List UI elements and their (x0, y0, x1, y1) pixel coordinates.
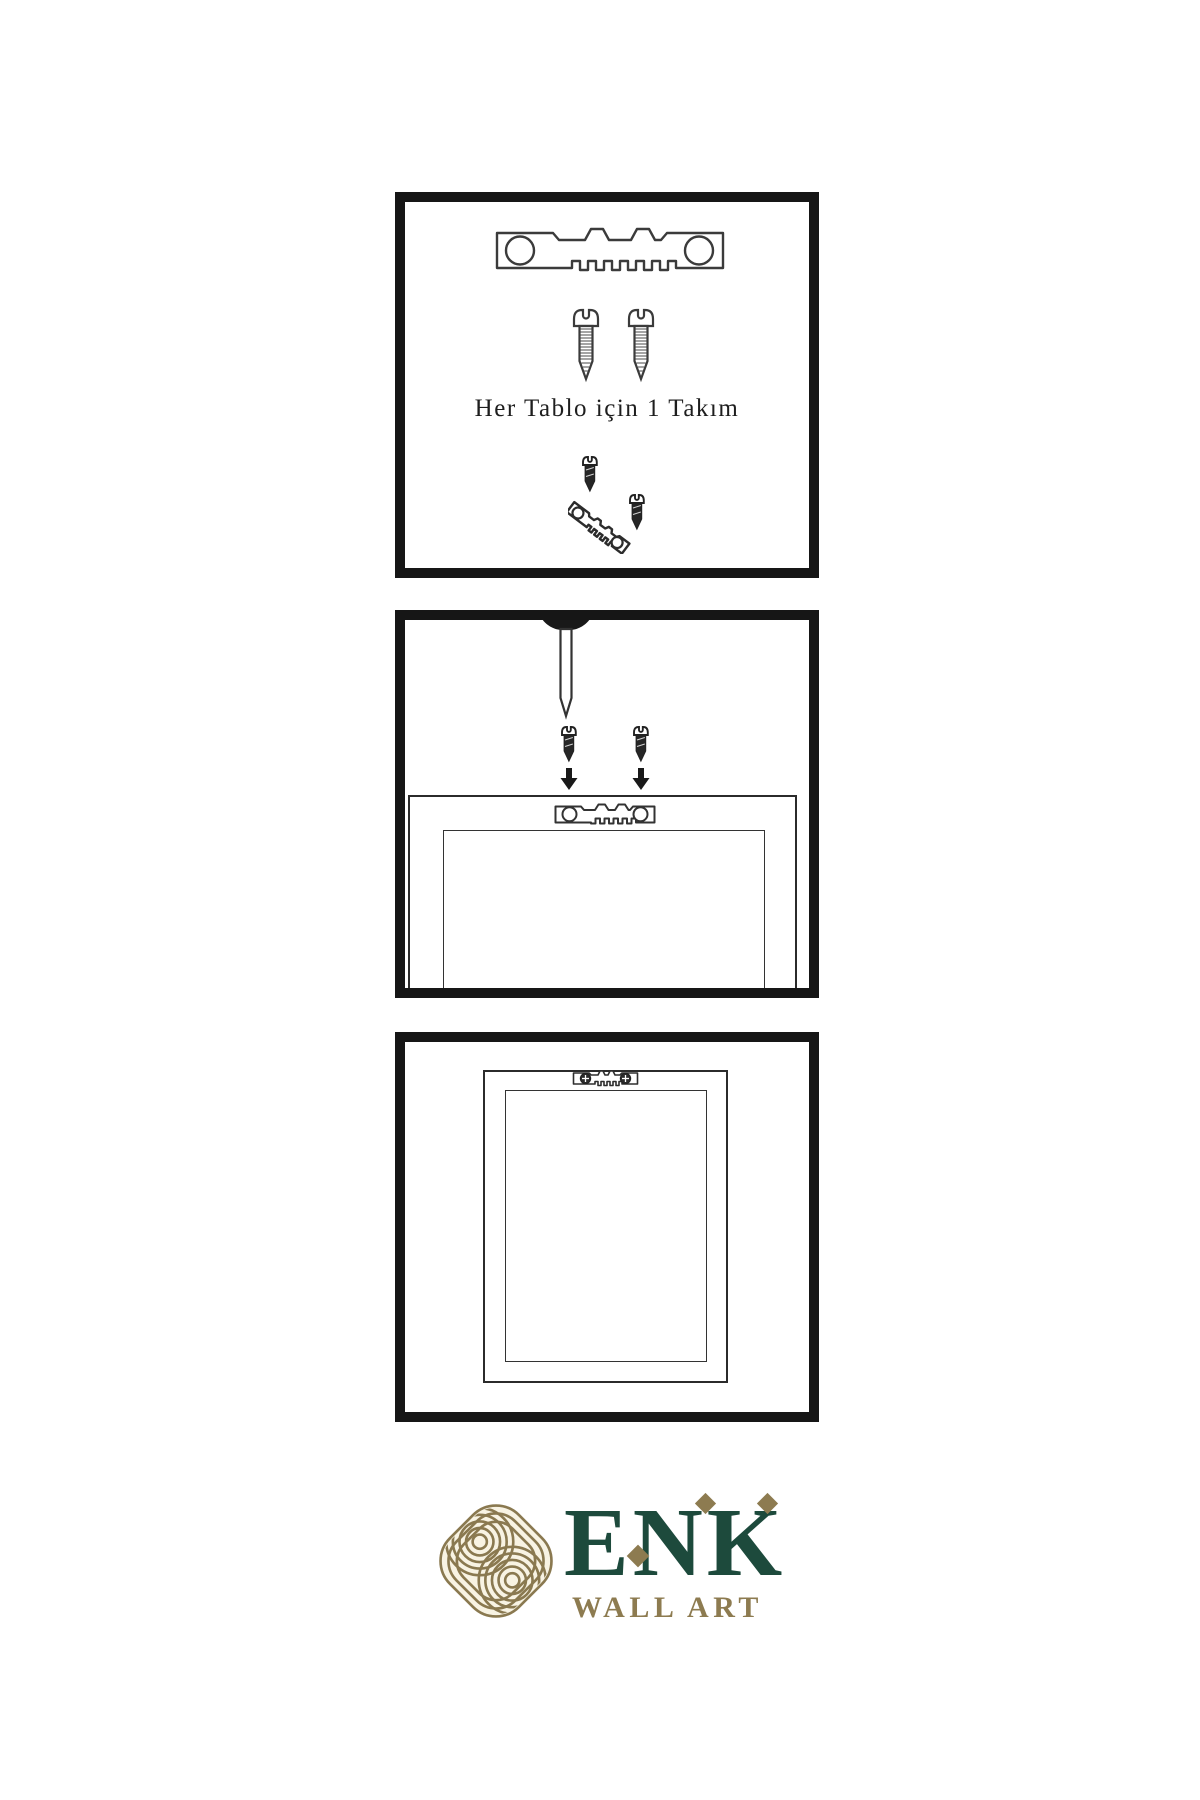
screw-icon (626, 305, 656, 383)
dark-screw-icon (583, 457, 597, 491)
brand-logo: ENK WALL ART (430, 1488, 830, 1678)
crosshead-screw-icon (580, 1073, 590, 1083)
arrow-down-icon (561, 768, 578, 790)
panel-hardware-kit: Her Tablo için 1 Takım (395, 192, 819, 578)
brand-tagline: WALL ART (572, 1591, 763, 1625)
crosshead-screw-icon (620, 1073, 630, 1083)
instruction-sheet: Her Tablo için 1 Takım (0, 0, 1200, 1800)
dark-screw-with-arrow-icon (558, 724, 580, 796)
arrow-down-icon (633, 768, 650, 790)
panel-mounted-frame (395, 1032, 819, 1422)
dark-screw-with-arrow-icon (630, 724, 652, 796)
frame-back-inner (443, 830, 765, 998)
brand-name: ENK (564, 1494, 786, 1591)
sawtooth-hanger-icon (553, 802, 657, 828)
nail-icon (542, 619, 590, 722)
screw-icon (571, 305, 601, 383)
frame-back-inner (505, 1090, 707, 1362)
dark-screw-icon (630, 495, 644, 529)
panel-mounting-step (395, 610, 819, 998)
knot-logo-icon (432, 1495, 560, 1627)
hanger-assembly-icon (568, 454, 658, 554)
sawtooth-hanger-mounted-icon (572, 1069, 639, 1089)
sawtooth-hanger-icon (493, 224, 728, 278)
kit-caption: Her Tablo için 1 Takım (475, 395, 740, 423)
